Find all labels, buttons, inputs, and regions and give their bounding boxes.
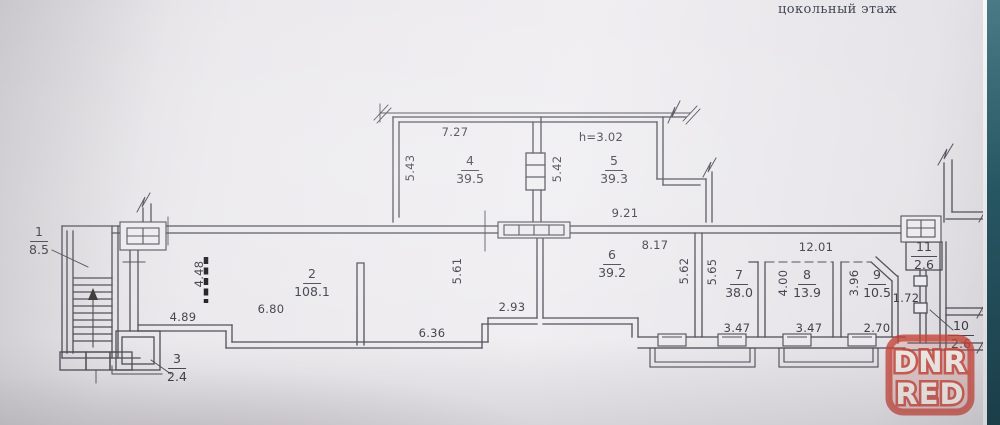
room-11-area: 2.6 <box>914 257 934 272</box>
room-4-label: 439.5 <box>456 155 484 185</box>
room-3-area: 2.4 <box>167 369 187 384</box>
room-9-number: 9 <box>868 269 886 285</box>
room-8-number: 8 <box>798 269 816 285</box>
dim-room5-width: 9.21 <box>612 206 639 220</box>
room-7-area: 38.0 <box>725 285 753 300</box>
floorplan-drawing <box>0 0 1000 425</box>
room-6-label: 639.2 <box>598 249 626 279</box>
dim-room6-depth: 5.62 <box>677 258 691 285</box>
floorplan-photo: цокольный этаж 18.5 2108.1 32.4 439.5 53… <box>0 0 1000 425</box>
room-3-label: 32.4 <box>167 353 187 383</box>
dim-shaft-width: 1.72 <box>893 291 920 305</box>
room-9-area: 10.5 <box>863 285 891 300</box>
wall-break-mark <box>938 144 953 165</box>
room-7-label: 738.0 <box>725 269 753 299</box>
room1-leader-line <box>52 250 88 267</box>
dim-hall-left: 4.89 <box>170 310 197 324</box>
room-11-number: 11 <box>911 241 937 257</box>
room-3-number: 3 <box>168 353 186 369</box>
top-dimension-line <box>374 104 700 124</box>
dim-room6-width: 8.17 <box>642 238 669 252</box>
room-5-label: 539.3 <box>600 155 628 185</box>
wall-break-mark <box>668 101 680 123</box>
dim-divider-4-5: 5.42 <box>550 156 564 183</box>
dim-hall-step: 2.93 <box>499 300 526 314</box>
room-5-number: 5 <box>605 155 623 171</box>
room-8-area: 13.9 <box>793 285 821 300</box>
room-9-label: 910.5 <box>863 269 891 299</box>
room-2-area: 108.1 <box>294 284 330 299</box>
light-wells <box>650 348 878 367</box>
dim-room9-depth: 3.96 <box>847 270 861 297</box>
plan-title: цокольный этаж <box>778 2 897 17</box>
dim-room4-depth: 5.43 <box>403 155 417 182</box>
dim-hall-depth: 6.80 <box>258 302 285 316</box>
room-1-label: 18.5 <box>29 226 49 256</box>
room-11-label: 112.6 <box>911 241 937 271</box>
wall-break-mark <box>703 158 716 177</box>
dim-stair-side: 4.48 <box>192 261 206 288</box>
room-5-area: 39.3 <box>600 171 628 186</box>
dnr-red-watermark: DNR RED <box>884 333 976 421</box>
stair-direction-arrow <box>88 288 98 300</box>
dim-room8-depth: 4.00 <box>776 270 790 297</box>
watermark-line2: RED <box>895 377 964 411</box>
dim-ceiling-height: h=3.02 <box>579 130 623 144</box>
dim-room7-depth: 5.65 <box>705 259 719 286</box>
dim-hall-bottom: 6.36 <box>419 326 446 340</box>
dim-room4-width: 7.27 <box>442 125 469 139</box>
dim-room8-width: 3.47 <box>796 321 823 335</box>
dim-hall-height: 5.61 <box>450 258 464 285</box>
dim-corridor-width: 12.01 <box>799 240 833 254</box>
watermark-line1: DNR <box>893 345 967 379</box>
room-6-area: 39.2 <box>598 265 626 280</box>
dim-room7-width: 3.47 <box>724 321 751 335</box>
room-1-number: 1 <box>30 226 48 242</box>
room-7-number: 7 <box>730 269 748 285</box>
room-2-label: 2108.1 <box>294 268 330 298</box>
room-6-number: 6 <box>603 249 621 265</box>
room-4-number: 4 <box>461 155 479 171</box>
table-edge-strip <box>987 0 1000 425</box>
room-1-area: 8.5 <box>29 242 49 257</box>
room-2-number: 2 <box>303 268 321 284</box>
room-4-area: 39.5 <box>456 171 484 186</box>
room-8-label: 813.9 <box>793 269 821 299</box>
